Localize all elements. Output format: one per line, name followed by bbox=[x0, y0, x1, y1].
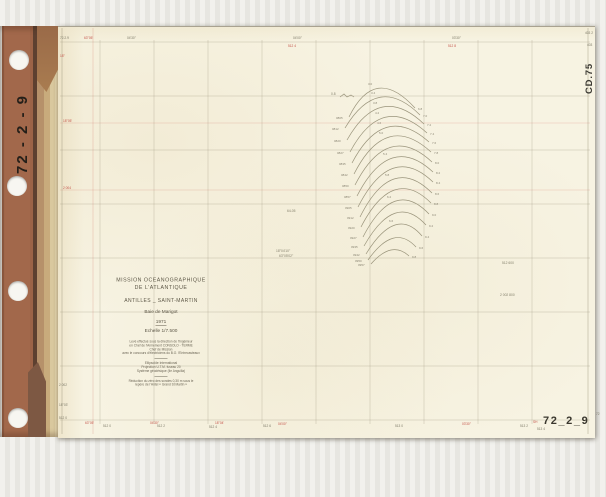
sounding-label-left: 0835 bbox=[339, 162, 346, 166]
datum-line: repère de l'Hôtel « Grand St Martin » bbox=[91, 383, 231, 387]
credit-line: avec le concours d'électriciens du B.O. … bbox=[91, 352, 231, 356]
map-annotation: 64-05 bbox=[287, 209, 296, 213]
sounding-label-apex: 6.6 bbox=[389, 219, 394, 223]
sounding-label-right: 8.2 bbox=[436, 171, 441, 175]
sounding-label-left: 0905 bbox=[345, 206, 352, 210]
sounding-label-apex: 6.2 bbox=[387, 195, 392, 199]
edge-tick-label: 2 004 bbox=[63, 186, 71, 190]
edge-tick-label: 403 bbox=[587, 43, 593, 47]
edge-tick-label: 512 0 bbox=[59, 416, 67, 420]
sounding-label-right: 9.8 bbox=[412, 255, 417, 259]
edge-tick-label: 63°05' bbox=[84, 36, 93, 40]
punch-hole bbox=[8, 408, 28, 428]
mission-title-line1: MISSION OCEANOGRAPHIQUE bbox=[91, 277, 231, 283]
separator-rule bbox=[155, 359, 168, 360]
edge-tick-label: 04'00'' bbox=[278, 422, 287, 426]
edge-tick-label: 512 6 bbox=[263, 424, 271, 428]
binder-spine bbox=[0, 26, 58, 437]
edge-tick-label: 403 2 bbox=[585, 31, 593, 35]
sounding-label-right: 8.4 bbox=[436, 181, 441, 185]
edge-tick-label: 04'30'' bbox=[127, 36, 136, 40]
sounding-label-left: 0820 bbox=[334, 139, 341, 143]
edge-tick-label: SH bbox=[533, 420, 538, 424]
sounding-label-apex: 4.2 bbox=[375, 111, 380, 115]
sounding-label-left: 0812 bbox=[332, 127, 339, 131]
sounding-label-right: 7.2 bbox=[427, 123, 432, 127]
punch-hole bbox=[8, 281, 28, 301]
sounding-label-right: 8.0 bbox=[435, 161, 440, 165]
sounding-label-right: 8.6 bbox=[435, 192, 440, 196]
edge-tick-label: 72 bbox=[596, 412, 600, 416]
sounding-label-left: 0942 bbox=[353, 253, 360, 257]
map-scale: Echelle 1/7.500 bbox=[91, 328, 231, 334]
geodesy-line: Système géodésique (île Anguilla) bbox=[91, 369, 231, 373]
edge-tick-label: 04'00'' bbox=[293, 36, 302, 40]
separator-rule bbox=[155, 376, 168, 377]
sounding-label-apex: 5.8 bbox=[385, 173, 390, 177]
map-annotation: 18°04'10'' bbox=[276, 249, 291, 253]
edge-tick-label: 18° bbox=[60, 54, 66, 58]
edge-tick-label: 72.2.9 bbox=[60, 36, 69, 40]
sounding-label-right: 9.0 bbox=[432, 213, 437, 217]
sounding-track-arc bbox=[371, 250, 409, 264]
sounding-label-right: 7.4 bbox=[430, 132, 435, 136]
map-annotation: 63°05'02'' bbox=[279, 254, 294, 258]
sounding-label-right: 6.8 bbox=[418, 107, 423, 111]
sheet-number: 72_2_9 bbox=[543, 415, 589, 427]
edge-tick-label: 512 8 bbox=[448, 44, 456, 48]
sounding-label-left: 0920 bbox=[348, 226, 355, 230]
sounding-label-left: 0827 bbox=[337, 151, 344, 155]
sounding-label-apex: 3.8 bbox=[373, 101, 378, 105]
sounding-label-left: 0805 bbox=[336, 116, 343, 120]
sounding-label-right: 8.8 bbox=[434, 202, 439, 206]
sounding-label-left: 0857 bbox=[344, 195, 351, 199]
edge-tick-label: 513 2 bbox=[520, 424, 528, 428]
sounding-label-left: 0850 bbox=[342, 184, 349, 188]
sounding-label-apex: 3.0 bbox=[368, 82, 373, 86]
sheet-code-top-right: CD.75 bbox=[584, 63, 595, 94]
edge-tick-label: 18°03' bbox=[59, 403, 68, 407]
mission-title-line2: DE L'ATLANTIQUE bbox=[91, 285, 231, 291]
punch-hole bbox=[9, 50, 29, 70]
region-title: ANTILLES _ SAINT-MARTIN bbox=[91, 298, 231, 304]
survey-year: 1971 bbox=[156, 319, 167, 326]
sounding-label-apex: 4.6 bbox=[377, 121, 382, 125]
edge-tick-label: 512 4 bbox=[288, 44, 296, 48]
edge-tick-label: 513 0 bbox=[395, 424, 403, 428]
sounding-label-left: 0935 bbox=[351, 245, 358, 249]
sounding-label-right: 7.6 bbox=[432, 141, 437, 145]
sounding-track-arc bbox=[350, 116, 427, 152]
spine-handwritten-label: 72 - 2 - 9 bbox=[14, 94, 31, 174]
sounding-track-squiggle bbox=[340, 94, 354, 97]
sounding-label-right: 9.2 bbox=[429, 224, 434, 228]
edge-tick-label: 03'30'' bbox=[462, 422, 471, 426]
sounding-label-left: 0927 bbox=[350, 236, 357, 240]
sounding-label-left: 0912 bbox=[347, 216, 354, 220]
sounding-label-right: 9.6 bbox=[419, 246, 424, 250]
tape-tear-top bbox=[37, 26, 58, 92]
edge-tick-label: 18°05' bbox=[63, 119, 72, 123]
map-annotation: 512 600 bbox=[502, 261, 514, 265]
edge-tick-label: 513 4 bbox=[537, 427, 545, 431]
sounding-label-apex: 5.4 bbox=[383, 152, 388, 156]
sounding-label-left: 0957 bbox=[358, 263, 365, 267]
sounding-label-apex: 3.4 bbox=[371, 91, 376, 95]
sounding-track-arc bbox=[361, 189, 431, 227]
sounding-label-left: 0842 bbox=[341, 173, 348, 177]
sounding-label-right: 7.0 bbox=[423, 114, 428, 118]
sounding-label-right: 7.8 bbox=[434, 151, 439, 155]
sounding-label-apex: 5.0 bbox=[379, 131, 384, 135]
tape-tear-bottom bbox=[28, 362, 46, 437]
punch-hole bbox=[7, 176, 27, 196]
title-block: MISSION OCEANOGRAPHIQUE DE L'ATLANTIQUE … bbox=[91, 277, 231, 497]
sounding-track-arc bbox=[364, 212, 426, 246]
map-annotation: 2 002 800 bbox=[500, 293, 515, 297]
map-annotation: 0.8 bbox=[331, 92, 336, 96]
edge-tick-label: 03'30'' bbox=[452, 36, 461, 40]
sounding-label-right: 9.4 bbox=[425, 235, 430, 239]
edge-tick-label: 2 002 bbox=[59, 383, 67, 387]
sounding-track-arc bbox=[349, 88, 415, 117]
